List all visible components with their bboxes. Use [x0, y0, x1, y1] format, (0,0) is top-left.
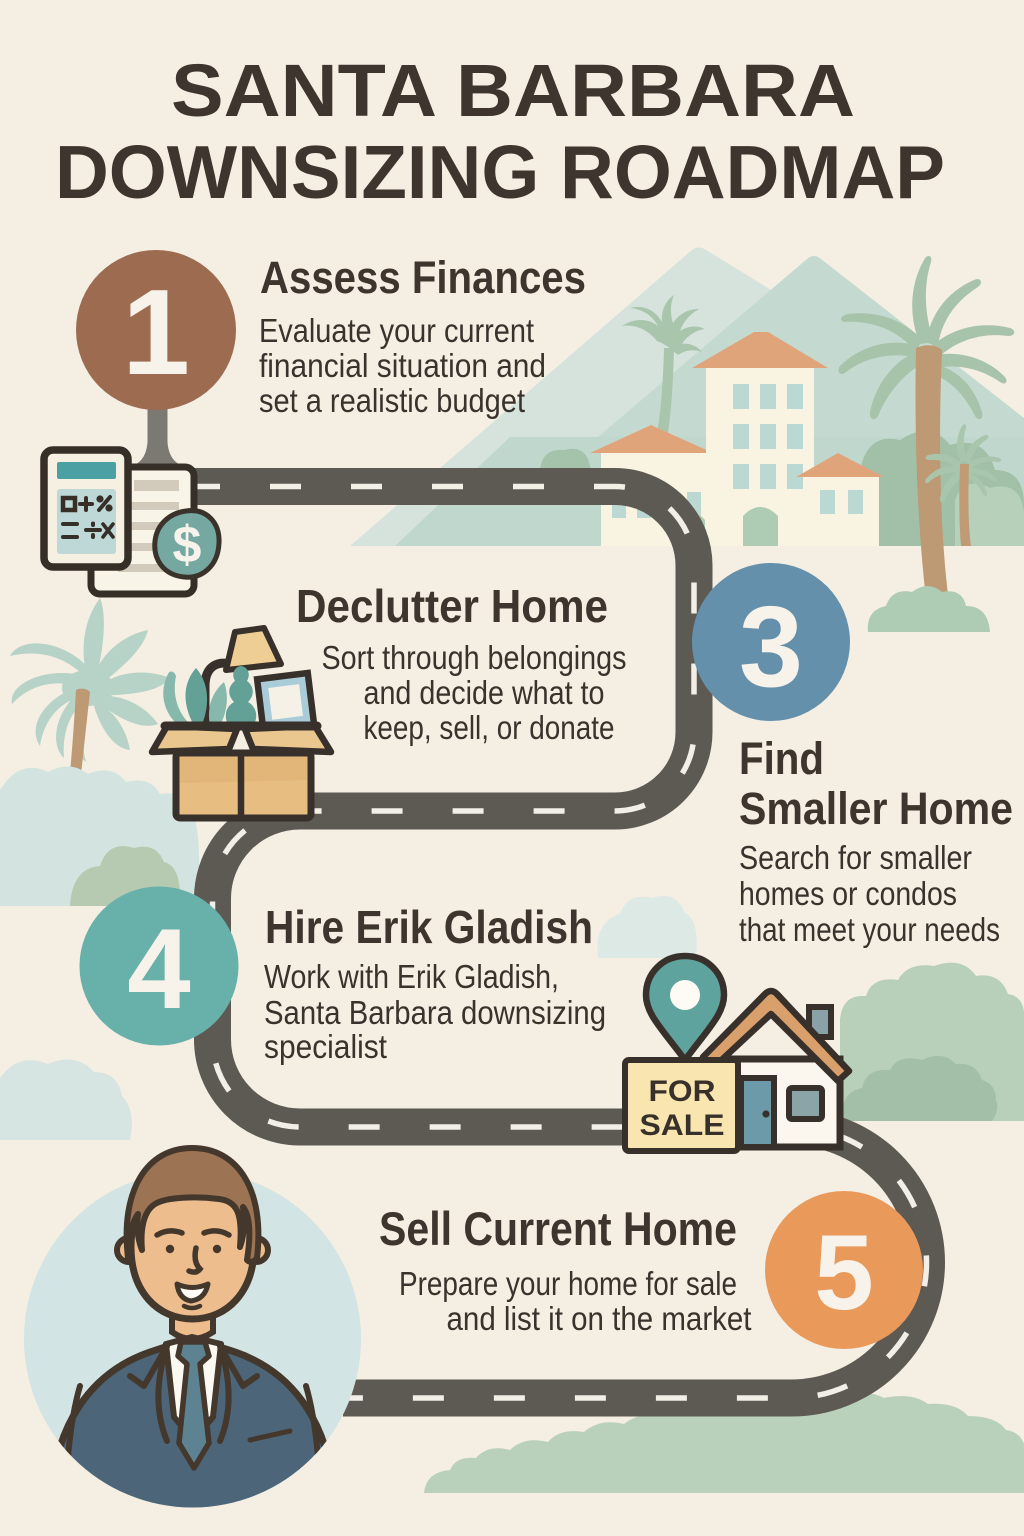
- svg-text:FOR: FOR: [649, 1075, 716, 1108]
- svg-text:Work with Erik Gladish,: Work with Erik Gladish,: [264, 958, 559, 995]
- svg-text:Assess Finances: Assess Finances: [260, 252, 586, 303]
- svg-text:Find: Find: [739, 733, 824, 784]
- svg-text:Sort through belongings: Sort through belongings: [322, 639, 627, 676]
- svg-text:4: 4: [127, 906, 190, 1033]
- svg-text:Hire Erik Gladish: Hire Erik Gladish: [265, 901, 593, 953]
- svg-text:financial situation and: financial situation and: [259, 347, 546, 384]
- svg-text:5: 5: [814, 1212, 874, 1332]
- svg-text:specialist: specialist: [264, 1028, 387, 1065]
- svg-text:Santa Barbara downsizing: Santa Barbara downsizing: [264, 994, 606, 1031]
- svg-text:DOWNSIZING ROADMAP: DOWNSIZING ROADMAP: [55, 130, 945, 214]
- svg-text:keep, sell, or donate: keep, sell, or donate: [364, 709, 615, 746]
- svg-text:and decide what to: and decide what to: [364, 674, 605, 711]
- svg-text:3: 3: [739, 583, 803, 711]
- svg-text:homes or condos: homes or condos: [739, 875, 957, 912]
- svg-text:Evaluate your current: Evaluate your current: [259, 312, 534, 349]
- svg-text:Search for smaller: Search for smaller: [739, 839, 972, 876]
- svg-text:set a realistic budget: set a realistic budget: [259, 382, 525, 419]
- svg-text:1: 1: [122, 264, 190, 400]
- svg-text:and list it on the market: and list it on the market: [447, 1300, 752, 1337]
- svg-text:Smaller Home: Smaller Home: [739, 783, 1013, 834]
- svg-text:Declutter Home: Declutter Home: [296, 580, 608, 632]
- svg-text:SANTA BARBARA: SANTA BARBARA: [171, 49, 855, 132]
- svg-text:Sell Current Home: Sell Current Home: [379, 1202, 737, 1255]
- svg-text:SALE: SALE: [640, 1109, 725, 1142]
- svg-text:that meet your needs: that meet your needs: [739, 911, 1000, 948]
- svg-text:Prepare your home for sale: Prepare your home for sale: [399, 1265, 737, 1302]
- svg-text:$: $: [173, 516, 202, 574]
